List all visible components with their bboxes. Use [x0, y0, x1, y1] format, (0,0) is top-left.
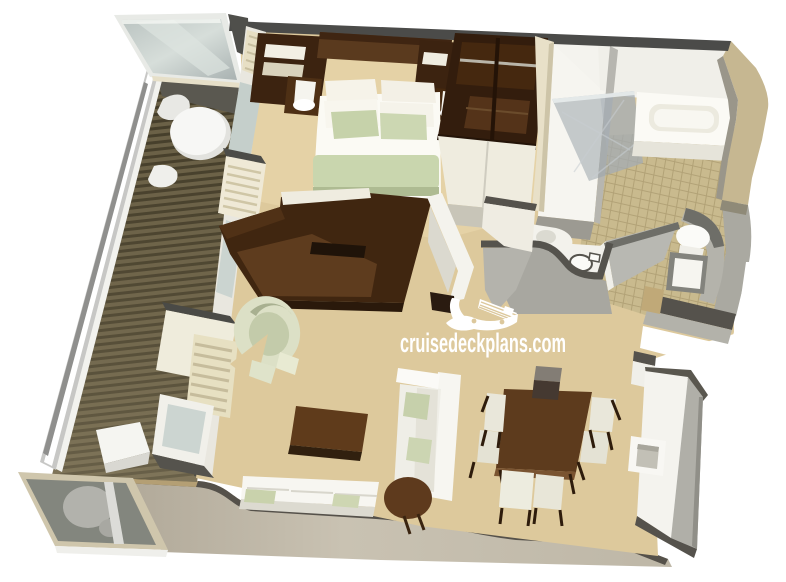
- svg-text:cruisedeckplans.com: cruisedeckplans.com: [400, 328, 566, 358]
